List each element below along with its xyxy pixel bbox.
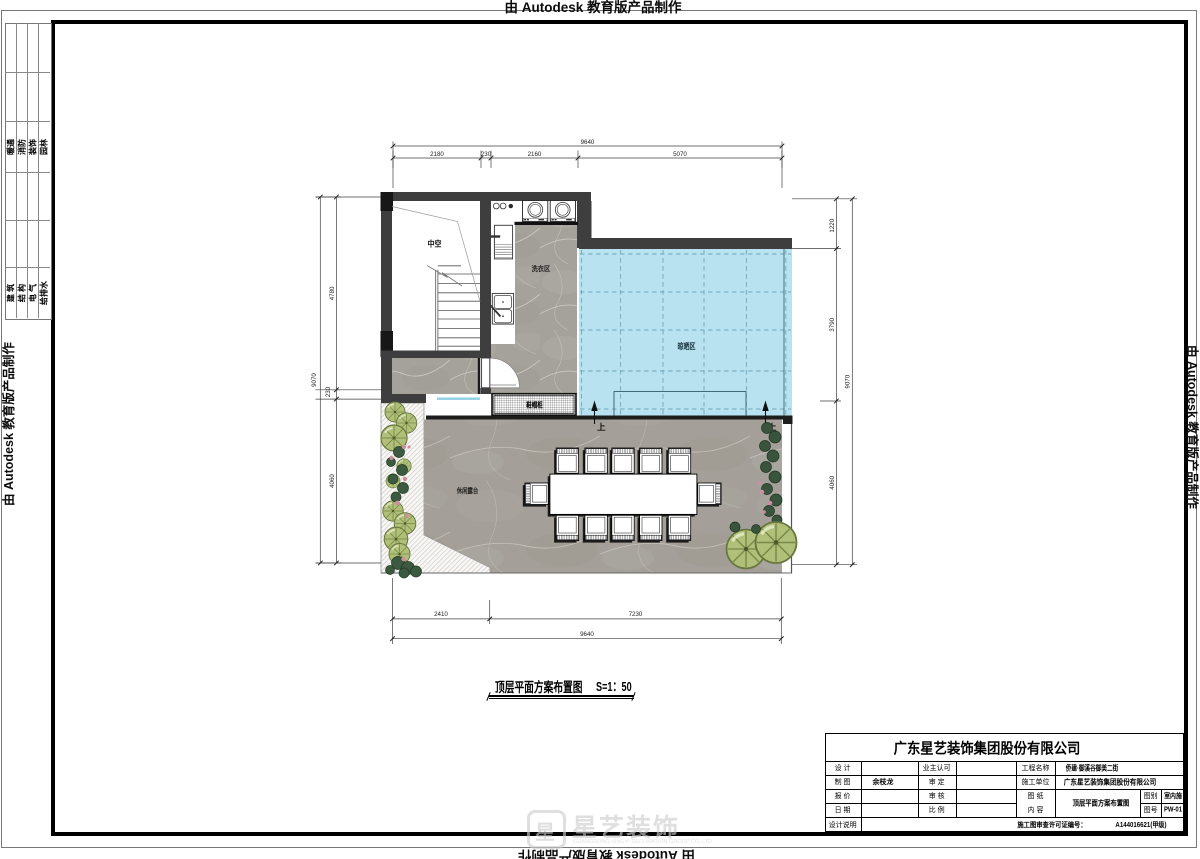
svg-text:230: 230 bbox=[325, 386, 332, 397]
svg-text:230: 230 bbox=[481, 151, 492, 158]
svg-text:洗衣区: 洗衣区 bbox=[532, 264, 551, 273]
svg-text:7230: 7230 bbox=[629, 611, 643, 618]
svg-text:上: 上 bbox=[597, 422, 606, 432]
svg-text:9640: 9640 bbox=[581, 139, 595, 146]
svg-text:休闲露台: 休闲露台 bbox=[456, 486, 478, 495]
svg-text:1220: 1220 bbox=[829, 218, 836, 232]
svg-text:4060: 4060 bbox=[329, 474, 336, 488]
svg-text:晾晒区: 晾晒区 bbox=[678, 341, 696, 351]
svg-text:9070: 9070 bbox=[845, 374, 852, 388]
svg-text:9070: 9070 bbox=[311, 373, 318, 387]
svg-text:2410: 2410 bbox=[434, 611, 448, 618]
svg-text:鞋帽柜: 鞋帽柜 bbox=[526, 400, 543, 410]
svg-text:2160: 2160 bbox=[528, 151, 542, 158]
svg-text:5070: 5070 bbox=[673, 151, 687, 158]
svg-text:9640: 9640 bbox=[580, 631, 594, 638]
svg-text:中空: 中空 bbox=[428, 239, 442, 249]
svg-text:2180: 2180 bbox=[430, 151, 444, 158]
svg-text:3790: 3790 bbox=[829, 317, 836, 331]
svg-text:4060: 4060 bbox=[829, 475, 836, 489]
svg-text:4780: 4780 bbox=[329, 286, 336, 300]
